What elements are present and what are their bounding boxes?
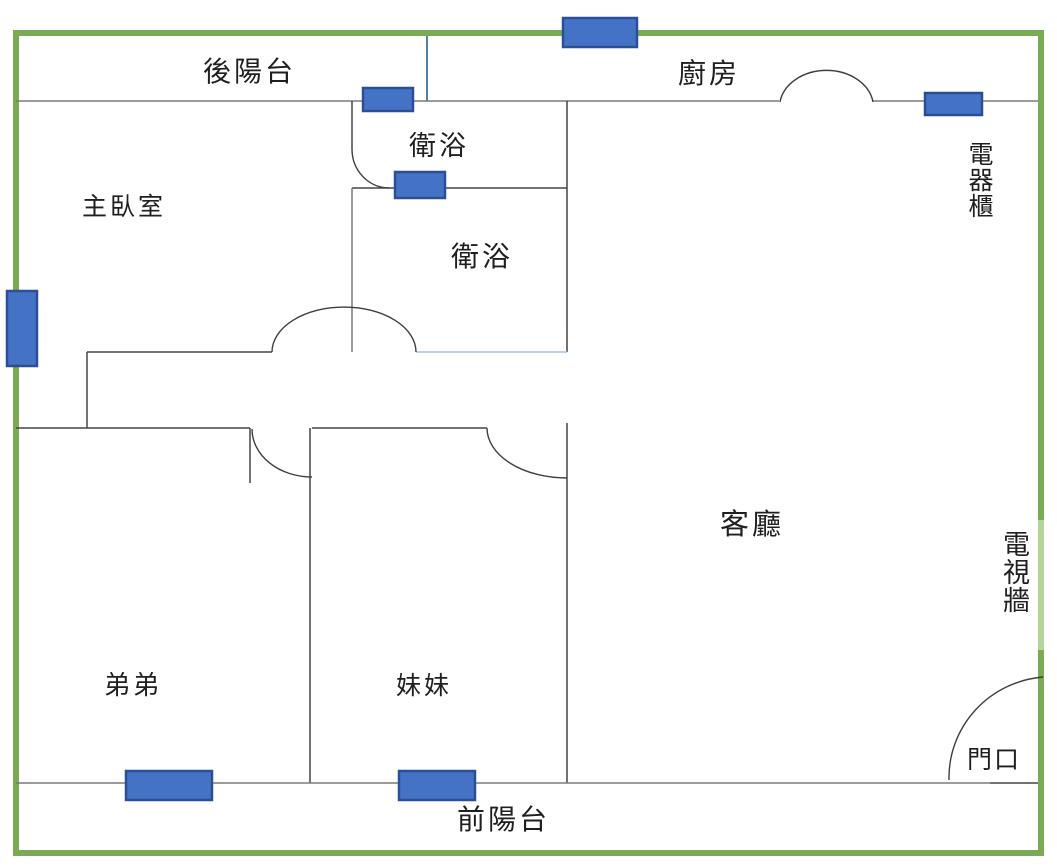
sister-room-label: 妹妹 <box>396 673 452 699</box>
front-balcony-label: 前陽台 <box>457 805 550 834</box>
brother-room-window-marker <box>126 771 212 800</box>
sister-room-window-marker <box>399 771 475 800</box>
floor-plan-drawing <box>0 0 1057 868</box>
bathroom-small-door-arc <box>352 149 389 188</box>
top-exterior-window-marker <box>563 18 637 47</box>
brother-room-door-arc <box>252 429 312 477</box>
back-balcony-label: 後陽台 <box>203 57 296 86</box>
kitchen-window-marker <box>925 93 982 115</box>
outer-boundary <box>16 33 1041 853</box>
sister-room-door-arc <box>487 428 567 478</box>
brother-room-label: 弟弟 <box>104 673 162 700</box>
appliance-cabinet-label: 電器櫃 <box>967 141 992 219</box>
bathroom-small-label: 衛浴 <box>409 133 469 161</box>
kitchen-label: 廚房 <box>678 59 740 88</box>
bathroom-main-label: 衛浴 <box>451 242 513 271</box>
back-balcony-window-marker <box>363 88 413 111</box>
kitchen-door-arc <box>780 70 873 102</box>
floor-plan-canvas: 後陽台 廚房 電器櫃 主臥室 衛浴 衛浴 客廳 電視牆 弟弟 妹妹 前陽台 門口 <box>0 0 1057 868</box>
tv-wall-label: 電視牆 <box>1000 530 1027 614</box>
master-bedroom-label: 主臥室 <box>82 194 166 220</box>
bathroom-window-marker <box>395 172 445 198</box>
living-room-label: 客廳 <box>720 509 784 539</box>
master-bedroom-side-window-marker <box>7 291 37 366</box>
master-bedroom-door-arc <box>272 307 416 352</box>
entrance-label: 門口 <box>967 747 1021 773</box>
